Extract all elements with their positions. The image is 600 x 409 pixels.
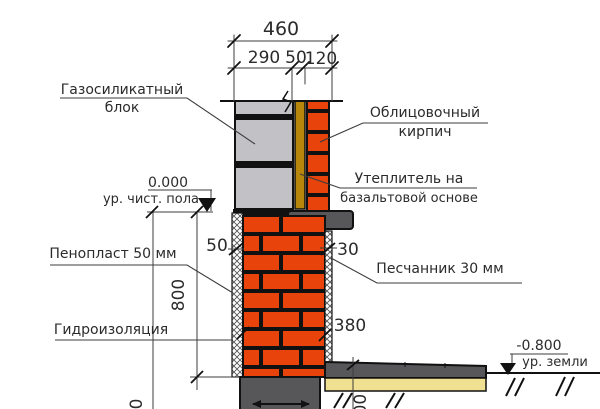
- dim-plinth-width: 380: [334, 316, 366, 336]
- construction-drawing: 460 290 50 120 0.000 ур. чист. пола 800 …: [0, 0, 600, 409]
- floor-level-marker: [198, 198, 216, 212]
- block-joint-2: [235, 161, 293, 168]
- ground-level-label: ур. земли: [522, 355, 588, 370]
- left-dimensions: 0.000 ур. чист. пола 800 0: [103, 175, 240, 409]
- dim-total-width: 460: [263, 18, 299, 40]
- floor-level-label: ур. чист. пола: [103, 192, 199, 207]
- basalt-insulation-strip: [295, 101, 305, 209]
- sand-cushion: [325, 378, 486, 391]
- dim-sandstone-width: 30: [337, 240, 359, 260]
- label-sandstone: Песчанник 30 мм: [376, 261, 503, 277]
- label-foam: Пенопласт 50 мм: [49, 246, 176, 262]
- ground-level-value: -0.800: [516, 338, 561, 354]
- facing-brick-wall: [307, 101, 329, 211]
- floor-level-value: 0.000: [148, 175, 188, 191]
- dim-block-width: 290: [248, 48, 280, 68]
- ground-level-mark: -0.800 ур. земли: [500, 338, 588, 375]
- label-insulation-1: Утеплитель на: [355, 171, 464, 187]
- wall-section-svg: 460 290 50 120 0.000 ур. чист. пола 800 …: [0, 0, 600, 409]
- label-gas-silicate-2: блок: [105, 100, 140, 116]
- label-facing-brick-2: кирпич: [399, 124, 452, 140]
- dim-plinth-height: 800: [169, 279, 189, 311]
- dim-foam-width: 50: [206, 236, 228, 256]
- dim-insulation-width: 50: [285, 48, 307, 68]
- dim-facing-brick-width: 120: [305, 49, 337, 69]
- top-dimensions: 460 290 50 120: [228, 18, 338, 101]
- label-insulation-2: базальтовой основе: [340, 191, 478, 206]
- dim-slab-thickness: 100: [351, 394, 371, 409]
- label-waterproofing: Гидроизоляция: [54, 322, 168, 338]
- block-joint-1: [235, 114, 293, 120]
- label-gas-silicate-1: Газосиликатный: [61, 82, 183, 98]
- plinth-brick-wall: [243, 216, 325, 377]
- sandstone-strip: [325, 231, 332, 377]
- dim-left-cutoff: 0: [127, 399, 147, 409]
- label-facing-brick-1: Облицовочный: [370, 105, 480, 121]
- foam-strip: [232, 213, 243, 377]
